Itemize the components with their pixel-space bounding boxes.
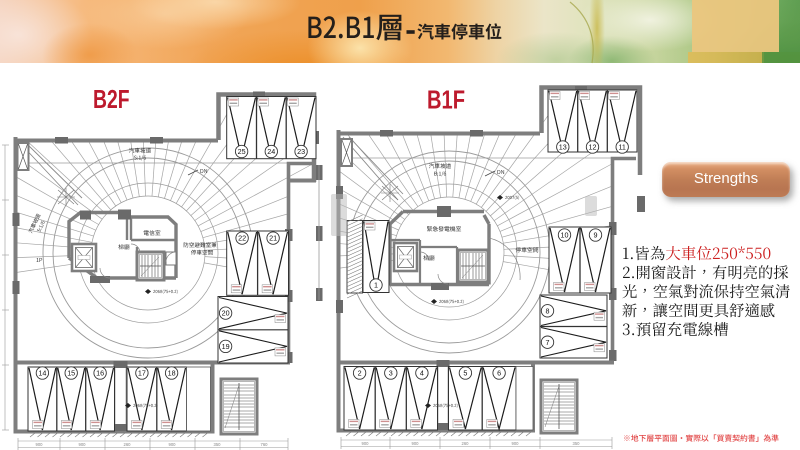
svg-text:900: 900	[36, 442, 44, 447]
svg-text:9: 9	[594, 231, 598, 240]
svg-text:15: 15	[67, 369, 75, 378]
svg-text:14: 14	[38, 369, 46, 378]
svg-text:6: 6	[497, 369, 501, 378]
svg-text:350: 350	[214, 442, 222, 447]
svg-text:900: 900	[169, 442, 177, 447]
svg-text:19: 19	[222, 342, 230, 351]
svg-text:900: 900	[362, 441, 370, 446]
svg-text:21: 21	[269, 234, 277, 243]
svg-text:11: 11	[618, 143, 625, 152]
svg-text:23: 23	[297, 147, 305, 156]
svg-text:10: 10	[561, 231, 569, 240]
svg-text:22: 22	[238, 234, 246, 243]
svg-text:25: 25	[238, 147, 246, 156]
svg-text:260: 260	[124, 442, 132, 447]
svg-text:1: 1	[374, 281, 378, 290]
svg-text:2: 2	[358, 369, 362, 378]
svg-text:3: 3	[389, 369, 393, 378]
svg-text:24: 24	[267, 147, 275, 156]
svg-text:5: 5	[463, 369, 467, 378]
svg-text:4: 4	[420, 369, 424, 378]
svg-text:16: 16	[96, 369, 104, 378]
svg-text:760: 760	[261, 442, 269, 447]
svg-text:13: 13	[559, 143, 567, 152]
svg-text:7: 7	[546, 338, 550, 347]
svg-text:12: 12	[589, 143, 597, 152]
svg-text:B2F: B2F	[93, 84, 130, 114]
svg-text:350: 350	[573, 441, 581, 446]
svg-text:900: 900	[512, 441, 520, 446]
svg-text:17: 17	[138, 369, 146, 378]
svg-text:900: 900	[79, 442, 87, 447]
svg-text:20: 20	[222, 309, 230, 318]
svg-text:900: 900	[412, 441, 420, 446]
svg-text:8: 8	[546, 306, 550, 315]
svg-text:18: 18	[168, 369, 176, 378]
svg-text:B1F: B1F	[427, 85, 465, 115]
svg-text:260: 260	[462, 441, 470, 446]
